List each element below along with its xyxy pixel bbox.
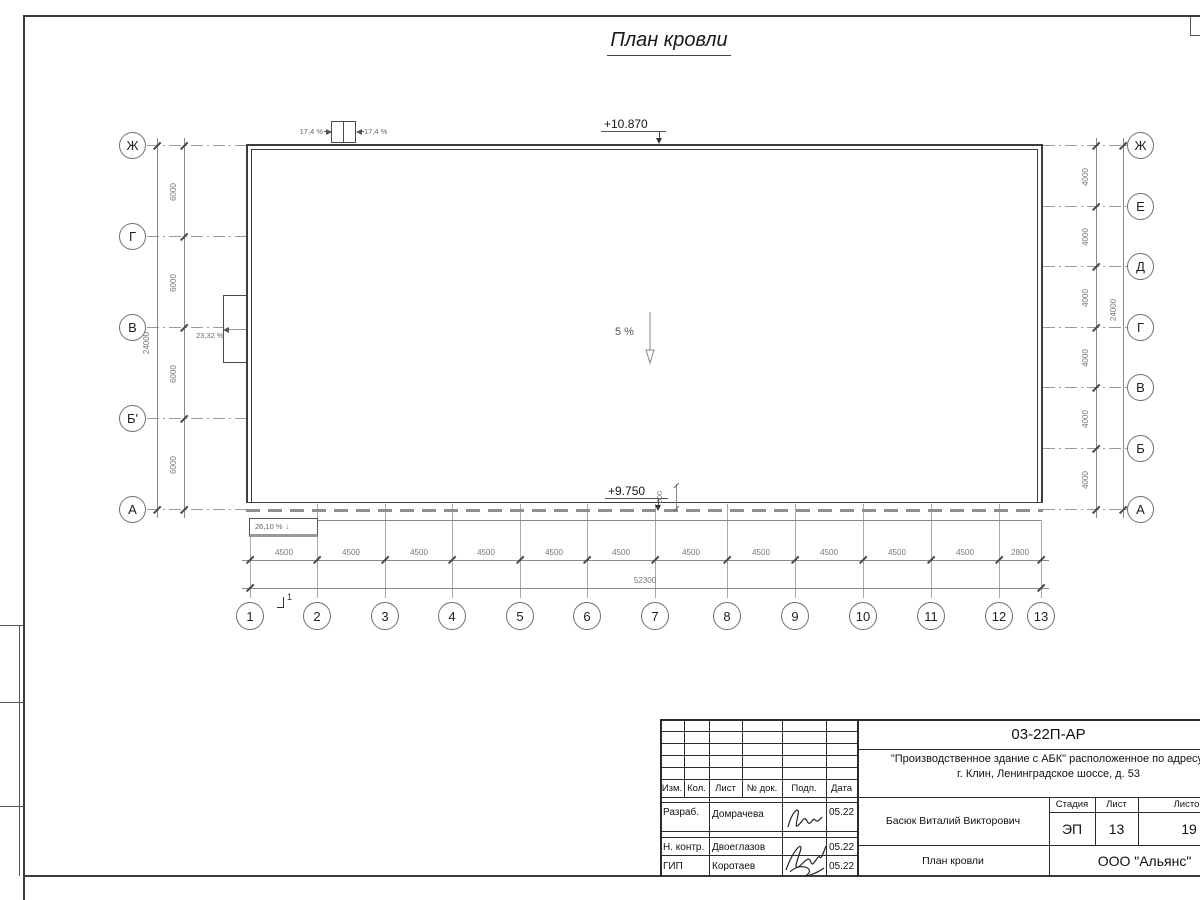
col-header-kol: Кол. [684,780,709,796]
titleblock-line [660,831,857,832]
col-header-podp: Подп. [782,780,826,796]
col-header-doc: № док. [742,780,782,796]
axis-circle: В [119,314,146,341]
sheet-header: Лист [1095,797,1138,812]
row-name: Домрачева [712,806,782,822]
dimension-label: 4500 [877,548,917,557]
titleblock-line [660,743,857,744]
signature-icon [784,803,826,833]
dimension-label: 24000 [1109,290,1121,330]
axis-circle: Б [1127,435,1154,462]
titleblock-line [660,802,857,803]
dimension-label: 4000 [1081,217,1093,257]
dimension-label: 2800 [1000,548,1040,557]
sheets-header: Листов [1138,797,1200,812]
margin-cell-line [0,702,23,703]
company-name: ООО "Альянс" [1049,845,1200,877]
arrow-down-icon [656,138,662,144]
axis-circle: 6 [573,602,601,630]
axis-circle: 4 [438,602,466,630]
dimension-label: 4500 [331,548,371,557]
project-address-line1: "Производственное здание с АБК" располож… [857,751,1200,766]
lower-roof-edge-line [249,520,1042,521]
titleblock-line [660,755,857,756]
canopy: 26,10 % ↓ [249,518,318,537]
axis-circle: 10 [849,602,877,630]
axis-circle: 13 [1027,602,1055,630]
dimension-label: 6000 [169,445,181,485]
margin-cell-line [0,806,23,807]
section-mark-line [277,607,283,609]
axis-line [1043,145,1127,146]
doc-number: 03-22П-АР [857,719,1200,749]
axis-line [147,145,246,146]
dimension-line [242,588,1049,589]
dimension-label: 6000 [169,172,181,212]
dimension-label: 4000 [1081,399,1093,439]
page-title: План кровли [569,29,769,52]
axis-line [931,504,932,598]
dimension-label: 4000 [1081,338,1093,378]
dimension-label: 6000 [169,354,181,394]
dimension-label: 4000 [1081,278,1093,318]
dimension-label: 4500 [671,548,711,557]
col-header-list: Лист [709,780,742,796]
titleblock-line [660,767,857,768]
axis-circle: Ж [1127,132,1154,159]
row-date: 05.22 [826,858,857,874]
dimension-line [1123,138,1124,518]
axis-line [147,509,246,510]
axis-line [795,504,796,598]
dimension-label: 6000 [169,263,181,303]
axis-circle: Д [1127,253,1154,280]
sheet-value: 13 [1095,812,1138,845]
row-name: Двоеглазов [712,839,782,855]
signature-icon [780,838,830,876]
stage-header: Стадия [1049,797,1095,812]
axis-line [727,504,728,598]
axis-line [1043,448,1127,449]
dimension-label: 4500 [809,548,849,557]
axis-line [147,236,246,237]
section-mark-label: 1 [287,592,292,602]
format-box-line [1190,17,1191,35]
axis-circle: 2 [303,602,331,630]
supervisor-name: Басюк Виталий Викторович [857,797,1049,845]
eaves-dashed-line [246,509,1043,512]
dimension-label: 4000 [1081,460,1093,500]
axis-circle: 1 [236,602,264,630]
axis-circle: Г [1127,314,1154,341]
titleblock-line [857,749,1200,750]
col-header-data: Дата [826,780,857,796]
sheet-title: План кровли [857,845,1049,877]
axis-circle: Г [119,223,146,250]
frame-top-line [23,15,1200,17]
dimension-label: 52300 [615,576,675,585]
dimension-label: 600 [657,482,669,512]
axis-circle: В [1127,374,1154,401]
dimension-line [157,138,158,518]
row-role: ГИП [663,858,709,874]
dimension-label: 4500 [534,548,574,557]
axis-circle: А [119,496,146,523]
dimension-label: 4500 [945,548,985,557]
slope-label: 26,10 % [250,522,283,531]
dimension-label: 4500 [399,548,439,557]
row-role: Н. контр. [663,839,709,855]
axis-circle: Ж [119,132,146,159]
sheets-value: 19 [1138,812,1200,845]
axis-circle: 8 [713,602,741,630]
drawing-sheet: План кровли 17,4 % 17,4 % 23,32 % 26 [0,0,1200,900]
row-role: Разраб. [663,804,709,820]
axis-line [147,418,246,419]
dimension-label: 4000 [1081,157,1093,197]
axis-circle: 9 [781,602,809,630]
axis-line [1043,266,1127,267]
axis-circle: 11 [917,602,945,630]
row-date: 05.22 [826,839,857,855]
slope-label: 17,4 % [364,127,387,136]
slope-label: 5 % [615,326,634,338]
row-date: 05.22 [826,804,857,820]
elevation-mark: +10.870 [601,117,666,132]
margin-column-line [19,625,20,876]
margin-cell-line [0,625,23,626]
dimension-label: 4500 [264,548,304,557]
axis-line [1043,206,1127,207]
axis-circle: Б' [119,405,146,432]
stage-value: ЭП [1049,812,1095,845]
arrow-right-icon [326,129,332,135]
col-header-izm: Изм. [660,780,684,796]
axis-circle: 3 [371,602,399,630]
dimension-label: 4500 [601,548,641,557]
format-box-line [1190,35,1200,36]
row-name: Коротаев [712,858,782,874]
roof-hatch-divider [343,122,345,143]
axis-circle: А [1127,496,1154,523]
axis-circle: 7 [641,602,669,630]
slope-direction-arrow-icon [643,311,657,365]
axis-line [385,504,386,598]
axis-circle: 12 [985,602,1013,630]
dimension-label: 4500 [741,548,781,557]
axis-line [452,504,453,598]
slope-label: 23,32 % [196,331,224,340]
axis-line [1043,387,1127,388]
axis-line [863,504,864,598]
axis-line [587,504,588,598]
dimension-label: 4500 [466,548,506,557]
axis-line [1043,509,1127,510]
project-address-line2: г. Клин, Ленинградское шоссе, д. 53 [857,766,1200,781]
title-underline [607,55,731,56]
axis-circle: Е [1127,193,1154,220]
axis-line [520,504,521,598]
slope-arrow-line [229,329,246,330]
arrow-down-icon: ↓ [283,522,290,531]
slope-label: 17,4 % [295,127,323,136]
axis-circle: 5 [506,602,534,630]
arrow-left-icon [356,129,362,135]
frame-left-line [23,15,25,900]
titleblock-line [660,731,857,732]
